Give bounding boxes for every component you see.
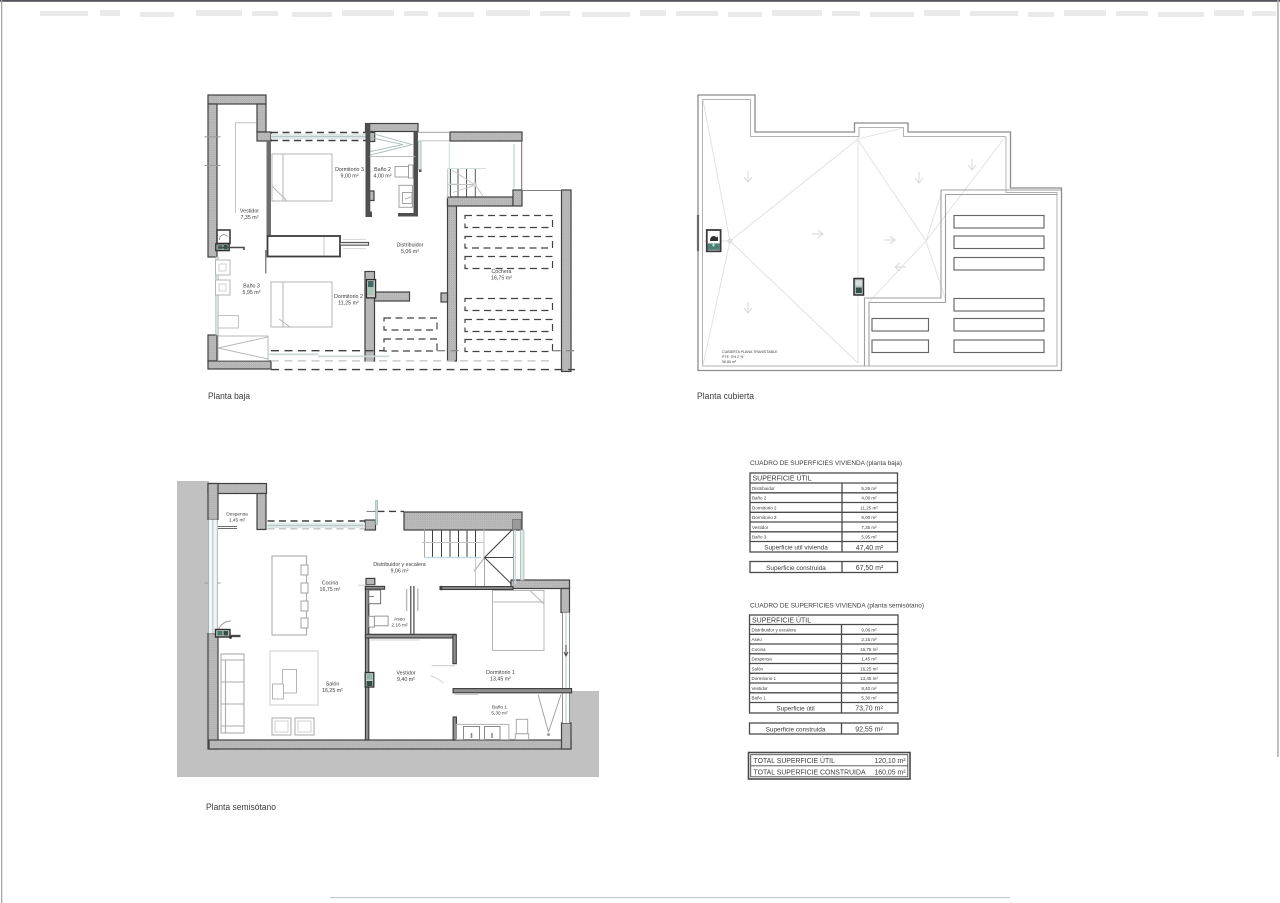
svg-text:Distribuidor y escalera: Distribuidor y escalera <box>752 627 797 632</box>
svg-text:Baño 1: Baño 1 <box>492 705 508 711</box>
svg-text:16,75 m²: 16,75 m² <box>491 276 512 282</box>
svg-text:Vestidor: Vestidor <box>240 209 259 215</box>
svg-text:Planta baja: Planta baja <box>208 391 250 401</box>
svg-text:Baño 2: Baño 2 <box>752 496 767 501</box>
svg-text:16,75 m²: 16,75 m² <box>320 587 341 593</box>
svg-text:Dormitorio 3: Dormitorio 3 <box>752 515 777 520</box>
svg-text:9,40 m²: 9,40 m² <box>397 677 415 683</box>
svg-text:2,16 m²: 2,16 m² <box>861 637 877 642</box>
svg-text:Aseo: Aseo <box>752 637 763 642</box>
svg-text:4,00 m²: 4,00 m² <box>374 174 392 180</box>
svg-text:56,80 m²: 56,80 m² <box>722 360 737 364</box>
svg-text:Dormitorio 3: Dormitorio 3 <box>335 167 364 173</box>
svg-text:13,45 m²: 13,45 m² <box>860 676 878 681</box>
svg-text:5,30 m²: 5,30 m² <box>861 696 877 701</box>
svg-text:Dormitorio 1: Dormitorio 1 <box>752 676 777 681</box>
svg-text:5,26 m²: 5,26 m² <box>861 486 877 491</box>
svg-text:1,45 m²: 1,45 m² <box>229 518 246 524</box>
svg-text:5,30 m²: 5,30 m² <box>491 711 508 717</box>
svg-text:67,50 m²: 67,50 m² <box>856 565 884 572</box>
svg-text:47,40 m²: 47,40 m² <box>856 545 884 552</box>
svg-text:Salón: Salón <box>752 666 764 671</box>
svg-text:9,00 m²: 9,00 m² <box>861 515 877 520</box>
svg-text:5,06 m²: 5,06 m² <box>401 249 419 255</box>
svg-text:Cocina: Cocina <box>322 581 339 587</box>
svg-text:Vestidor: Vestidor <box>396 671 415 677</box>
svg-text:CUADRO DE SUPERFICIES VIVIENDA: CUADRO DE SUPERFICIES VIVIENDA (planta b… <box>750 460 902 467</box>
svg-text:9,40 m²: 9,40 m² <box>861 686 877 691</box>
svg-text:120,10 m²: 120,10 m² <box>874 758 906 765</box>
svg-text:Superficie construida: Superficie construida <box>766 565 826 572</box>
svg-text:Dormitorio 1: Dormitorio 1 <box>486 670 515 676</box>
svg-text:73,70 m²: 73,70 m² <box>855 706 883 713</box>
svg-text:Dormitorio 2: Dormitorio 2 <box>752 505 777 510</box>
svg-text:11,25 m²: 11,25 m² <box>338 301 359 307</box>
svg-text:16,25 m²: 16,25 m² <box>322 688 343 694</box>
svg-text:Superficie útil: Superficie útil <box>776 705 814 712</box>
svg-text:1,45 m²: 1,45 m² <box>861 657 877 662</box>
svg-text:9,06 m²: 9,06 m² <box>391 569 409 575</box>
svg-text:Dormitorio 2: Dormitorio 2 <box>334 294 363 300</box>
svg-text:16,25 m²: 16,25 m² <box>860 666 878 671</box>
svg-text:Despensa: Despensa <box>752 657 773 662</box>
svg-text:5,95 m²: 5,95 m² <box>861 535 877 540</box>
svg-text:Salón: Salón <box>326 682 340 688</box>
svg-text:Despensa: Despensa <box>226 512 248 518</box>
svg-text:Baño 3: Baño 3 <box>243 284 260 290</box>
svg-text:Cochera: Cochera <box>491 269 511 275</box>
svg-text:Baño 3: Baño 3 <box>752 535 767 540</box>
svg-text:CUADRO DE SUPERFICIES VIVIENDA: CUADRO DE SUPERFICIES VIVIENDA (planta s… <box>750 603 924 610</box>
svg-text:Baño 2: Baño 2 <box>374 167 391 173</box>
svg-text:7,35 m²: 7,35 m² <box>861 525 877 530</box>
svg-text:Planta cubierta: Planta cubierta <box>697 391 754 401</box>
svg-text:Superficie util vivienda: Superficie util vivienda <box>764 545 828 552</box>
svg-text:SUPERFICIE ÚTIL: SUPERFICIE ÚTIL <box>753 474 812 483</box>
svg-text:Cocina: Cocina <box>752 647 767 652</box>
svg-text:92,55 m²: 92,55 m² <box>855 727 883 734</box>
svg-text:Distribuidor: Distribuidor <box>397 243 424 249</box>
svg-text:2,16 m²: 2,16 m² <box>391 623 408 629</box>
svg-text:Baño 1: Baño 1 <box>752 696 767 701</box>
svg-text:11,25 m²: 11,25 m² <box>860 505 878 510</box>
svg-text:13,45 m²: 13,45 m² <box>490 677 511 683</box>
svg-text:160,05 m²: 160,05 m² <box>874 770 906 777</box>
svg-text:TOTAL SUPERFICIE ÚTIL: TOTAL SUPERFICIE ÚTIL <box>754 756 836 765</box>
svg-text:CUBIERTA PLANA TRANSITABLE: CUBIERTA PLANA TRANSITABLE <box>722 350 778 354</box>
svg-text:5,95 m²: 5,95 m² <box>243 290 261 296</box>
svg-text:9,06 m²: 9,06 m² <box>861 627 877 632</box>
svg-text:Vestidor: Vestidor <box>752 686 769 691</box>
svg-text:7,35 m²: 7,35 m² <box>241 215 259 221</box>
svg-text:Vestidor: Vestidor <box>752 525 769 530</box>
svg-text:Distribuidor y escalera: Distribuidor y escalera <box>373 562 425 568</box>
svg-text:Superficie construida: Superficie construida <box>766 726 826 733</box>
svg-text:SUPERFICIE ÚTIL: SUPERFICIE ÚTIL <box>752 615 811 624</box>
svg-text:PTE. 5% 2 %: PTE. 5% 2 % <box>722 355 744 359</box>
svg-text:16,75 m²: 16,75 m² <box>860 647 878 652</box>
svg-text:4,00 m²: 4,00 m² <box>861 496 877 501</box>
svg-text:TOTAL SUPERFICIE CONSTRUIDA: TOTAL SUPERFICIE CONSTRUIDA <box>754 770 866 777</box>
svg-text:Aseo: Aseo <box>394 617 405 623</box>
svg-text:9,00 m²: 9,00 m² <box>341 174 359 180</box>
svg-text:Distribuidor: Distribuidor <box>752 486 775 491</box>
svg-text:Planta semisótano: Planta semisótano <box>206 802 276 812</box>
